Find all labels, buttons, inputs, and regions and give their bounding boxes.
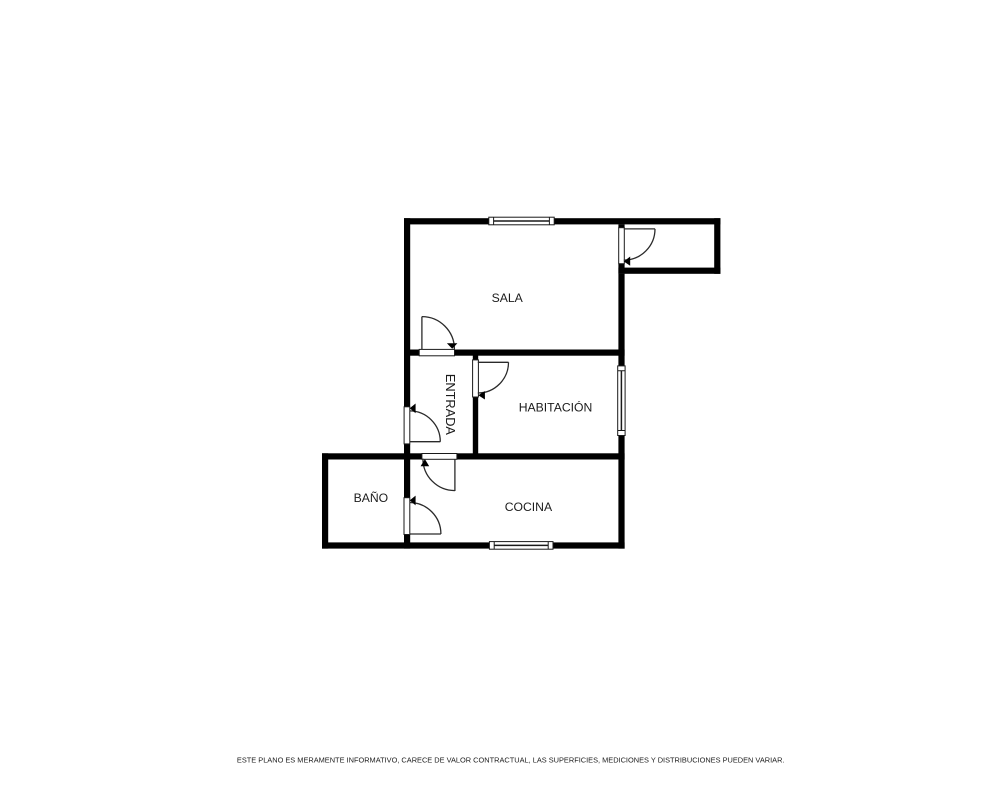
svg-text:BAÑO: BAÑO [354, 491, 389, 505]
svg-text:COCINA: COCINA [505, 500, 553, 514]
svg-text:ENTRADA: ENTRADA [443, 374, 458, 436]
svg-text:SALA: SALA [492, 291, 524, 305]
svg-text:HABITACIÓN: HABITACIÓN [519, 400, 593, 415]
svg-text:ESTE PLANO ES MERAMENTE INFORM: ESTE PLANO ES MERAMENTE INFORMATIVO, CAR… [237, 755, 785, 764]
